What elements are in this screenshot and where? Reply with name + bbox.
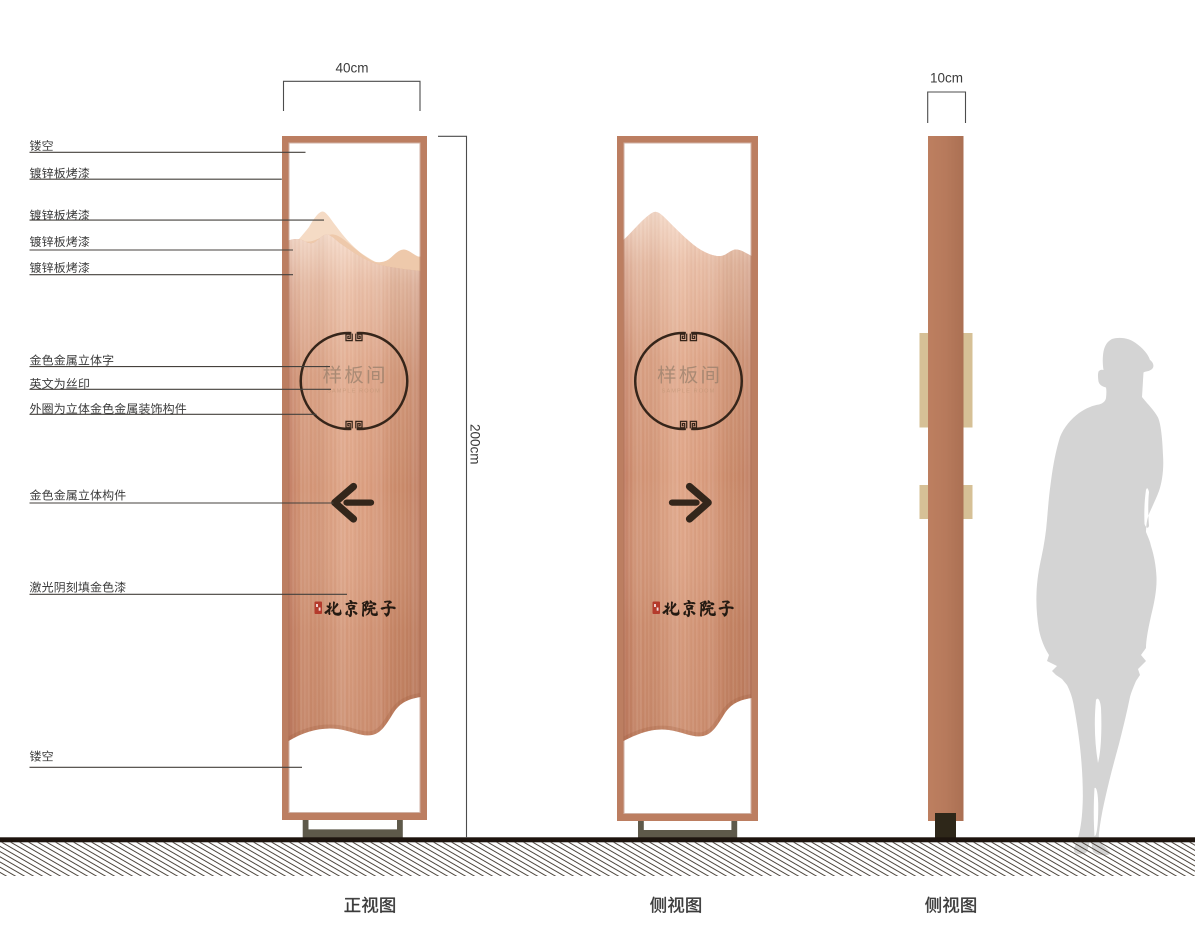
svg-text:10cm: 10cm: [930, 71, 963, 86]
svg-text:SAMPLE ROOM: SAMPLE ROOM: [327, 389, 381, 395]
svg-text:200cm: 200cm: [468, 424, 483, 465]
svg-text:SAMPLE ROOM: SAMPLE ROOM: [662, 389, 716, 395]
svg-text:40cm: 40cm: [335, 61, 368, 76]
